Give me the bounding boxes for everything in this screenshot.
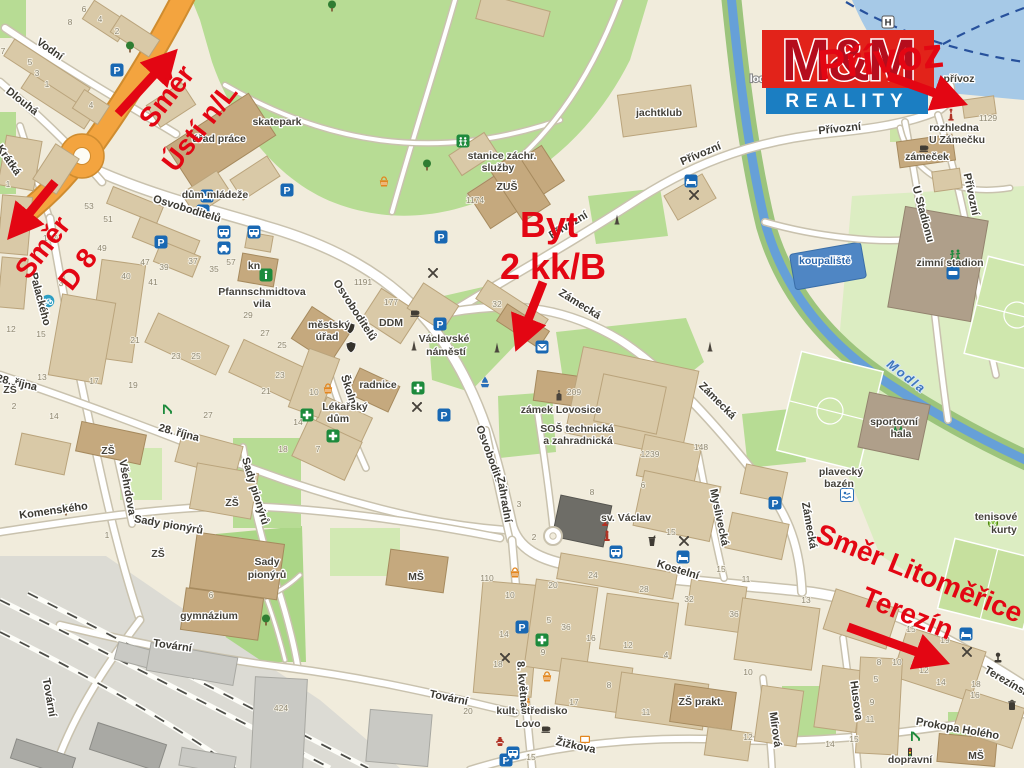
building-number: 12 <box>743 732 753 742</box>
building-number: 57 <box>226 257 236 267</box>
pharmacy-icon <box>327 430 340 443</box>
building-number: 5 <box>547 615 552 625</box>
parking-icon <box>769 497 782 511</box>
poi-label: Lékařský <box>322 401 368 413</box>
building-number: 39 <box>159 262 169 272</box>
building-number: 12 <box>623 640 633 650</box>
building-number: 40 <box>121 271 131 281</box>
building-number: 10 <box>892 657 902 667</box>
building-number: 8 <box>68 17 73 27</box>
building-number: 37 <box>188 256 198 266</box>
building-number: 11 <box>642 707 651 717</box>
building-number: 1 <box>45 79 50 89</box>
building-number: 1191 <box>354 277 373 287</box>
poi-label: ZŠ <box>151 547 164 560</box>
hsign-icon <box>882 16 894 29</box>
building-number: 18 <box>278 444 288 454</box>
building-number: 17 <box>89 376 99 386</box>
poi-label: hala <box>890 428 911 440</box>
building-number: 1129 <box>979 113 998 123</box>
building <box>932 168 963 192</box>
bus-icon <box>248 226 261 239</box>
bed-icon <box>685 175 698 188</box>
poi-label: Sady <box>254 556 279 568</box>
building-number: 47 <box>140 257 150 267</box>
building-number: 3 <box>517 499 522 509</box>
building-number: 9 <box>870 697 875 707</box>
building-number: 23 <box>171 351 181 361</box>
building-number: 18 <box>971 679 981 689</box>
building-number: 18 <box>493 659 503 669</box>
building-number: 53 <box>84 201 94 211</box>
poi-label: stanice záchr. <box>468 150 537 162</box>
building-number: 148 <box>694 442 708 452</box>
poi-label: zámek Lovosice <box>521 404 602 416</box>
poi-label: SOŠ technická <box>540 422 614 435</box>
parking-icon <box>155 236 168 250</box>
building-number: 32 <box>684 594 694 604</box>
building-number: 10 <box>505 590 515 600</box>
poi-label: kurty <box>991 524 1017 536</box>
building-number: 5 <box>874 674 879 684</box>
building-number: 4 <box>89 100 94 110</box>
poi-label: MŠ <box>968 749 984 762</box>
bus-icon <box>218 226 231 239</box>
building-number: 110 <box>480 573 494 583</box>
poi-label: zimní stadion <box>916 257 983 269</box>
poi-label: Pfannschmidtova <box>218 286 306 298</box>
parking-icon <box>434 318 447 332</box>
poi-label: bazén <box>824 478 854 490</box>
building-number: 1239 <box>641 449 660 459</box>
building-number: 2 <box>12 401 17 411</box>
building-number: 7 <box>316 444 321 454</box>
bed-icon <box>677 551 690 564</box>
building-number: 29 <box>243 310 253 320</box>
parking-icon <box>435 231 448 245</box>
bed-icon <box>960 628 973 641</box>
poi-label: ZŠ prakt. <box>679 695 724 708</box>
bus-icon <box>610 546 623 559</box>
building-number: 2 <box>115 26 120 36</box>
poi-label: pionýrů <box>248 569 287 581</box>
building-number: 12 <box>919 665 929 675</box>
poi-label: kult. středisko <box>496 705 567 717</box>
swim-icon <box>841 489 854 502</box>
building <box>685 579 747 632</box>
poi-label: jachtklub <box>635 107 682 119</box>
poi-label: vila <box>253 298 271 310</box>
building-number: 14 <box>936 677 946 687</box>
poi-label: úřad <box>316 331 339 343</box>
poi-label: rozhledna <box>929 122 979 134</box>
building-number: 15 <box>526 752 536 762</box>
building-number: 21 <box>130 335 140 345</box>
poi-label: dopravní <box>888 754 933 766</box>
building-number: 35 <box>209 264 219 274</box>
city-map: P H <box>0 0 1024 768</box>
building-number: 27 <box>203 410 213 420</box>
building-number: 12 <box>6 324 16 334</box>
building-number: 6 <box>641 480 646 490</box>
building-number: 19 <box>128 380 138 390</box>
coffee-icon <box>541 727 550 733</box>
building-number: 6 <box>82 4 87 14</box>
building-number: 25 <box>277 340 287 350</box>
poi-label: skatepark <box>252 116 301 128</box>
building-number: 11 <box>742 574 751 584</box>
poi-label: kn <box>248 260 260 272</box>
poi-label: dům mládeže <box>182 189 249 201</box>
logo-reality-text: REALITY <box>785 91 908 112</box>
poi-label: U Zámečku <box>929 134 985 146</box>
trash-icon <box>1008 700 1016 710</box>
building-number: 10 <box>743 667 753 677</box>
building-number: 5 <box>28 57 33 67</box>
building-number: 9 <box>541 647 546 657</box>
bus-icon <box>507 747 520 760</box>
building-number: 1174 <box>466 195 485 205</box>
poi-label: služby <box>482 162 515 174</box>
building-number: 16 <box>586 633 596 643</box>
envelope-icon <box>536 341 549 354</box>
building-number: 7 <box>1 46 6 56</box>
building-number: 424 <box>274 703 288 713</box>
building-number: 2 <box>532 532 537 542</box>
building-number: 14 <box>293 417 303 427</box>
info-icon <box>260 269 273 282</box>
pharmacy-icon <box>412 382 425 395</box>
building-number: 15 <box>36 329 46 339</box>
poi-label: náměstí <box>426 346 467 358</box>
building-number: 36 <box>729 609 739 619</box>
building-number: 27 <box>260 328 270 338</box>
building-number: 24 <box>588 570 598 580</box>
building-number: 4 <box>98 14 103 24</box>
building-number: 20 <box>548 580 558 590</box>
building-number: 10 <box>309 387 319 397</box>
building-number: 28 <box>639 584 649 594</box>
map-screenshot: P H <box>0 0 1024 768</box>
poi-label: ZŠ <box>225 496 238 509</box>
building-number: 14 <box>825 739 835 749</box>
parking-icon <box>281 184 294 198</box>
parking-icon <box>438 409 451 423</box>
poi-label: DDM <box>379 317 403 329</box>
building <box>251 677 308 768</box>
parking-icon <box>516 621 529 635</box>
building-number: 177 <box>384 297 398 307</box>
building-number: 6 <box>209 590 214 600</box>
building-number: 8 <box>877 657 882 667</box>
annotation-text: 2 kk/B <box>500 246 606 287</box>
building-number: 15 <box>849 734 859 744</box>
building-number: 51 <box>103 214 113 224</box>
pharmacy-icon <box>536 634 549 647</box>
building-number: 25 <box>191 351 201 361</box>
building-number: 13 <box>801 595 811 605</box>
building-number: 36 <box>561 622 571 632</box>
building-number: 14 <box>499 629 509 639</box>
poi-label: dům <box>327 413 349 425</box>
building-number: 3 <box>35 68 40 78</box>
building <box>734 598 820 670</box>
park-icon <box>457 135 470 148</box>
building-number: 8 <box>607 680 612 690</box>
mini-roundabout <box>544 527 562 545</box>
building-number: 23 <box>275 370 285 380</box>
building-number: 32 <box>492 299 502 309</box>
building <box>599 593 678 658</box>
poi-label: MŠ <box>408 570 424 583</box>
poi-label: sportovní <box>870 416 919 428</box>
building-number: 1 <box>6 179 11 189</box>
poi-label: ZŠ <box>3 383 16 396</box>
poi-label: tenisové <box>975 511 1018 523</box>
coffee-icon <box>410 311 419 317</box>
building-number: 13 <box>37 372 47 382</box>
building-number: 49 <box>97 243 107 253</box>
building-number: 41 <box>148 277 158 287</box>
poi-label: Lovo <box>515 718 540 730</box>
poi-label: sv. Václav <box>601 512 651 524</box>
building-number: 4 <box>664 650 669 660</box>
poi-label: plavecký <box>819 466 864 478</box>
annotation-text: Byt <box>520 204 578 245</box>
poi-label: a zahradnická <box>543 435 613 447</box>
building-number: 8 <box>590 487 595 497</box>
poi-label: městský <box>308 319 350 331</box>
building-number: 209 <box>567 387 581 397</box>
parking-icon <box>111 64 124 78</box>
building-number: 11 <box>866 714 875 724</box>
building-number: 21 <box>261 386 271 396</box>
poi-label: gymnázium <box>180 610 238 622</box>
building-number: 17 <box>569 697 579 707</box>
poi-label: přívoz <box>944 73 975 85</box>
car-icon <box>218 242 231 255</box>
building-number: 15 <box>716 564 726 574</box>
building-number: 1 <box>105 530 110 540</box>
poi-label: Václavské <box>419 333 470 345</box>
poi-label: koupaliště <box>799 255 851 267</box>
poi-label: zámeček <box>905 151 949 163</box>
building-number: 14 <box>49 411 59 421</box>
poi-label: ZŠ <box>101 444 114 457</box>
poi-label: radnice <box>359 379 397 391</box>
building-number: 16 <box>970 690 980 700</box>
building-number: 15 <box>666 527 676 537</box>
building <box>366 709 432 766</box>
poi-label: ZUŠ <box>497 180 518 193</box>
